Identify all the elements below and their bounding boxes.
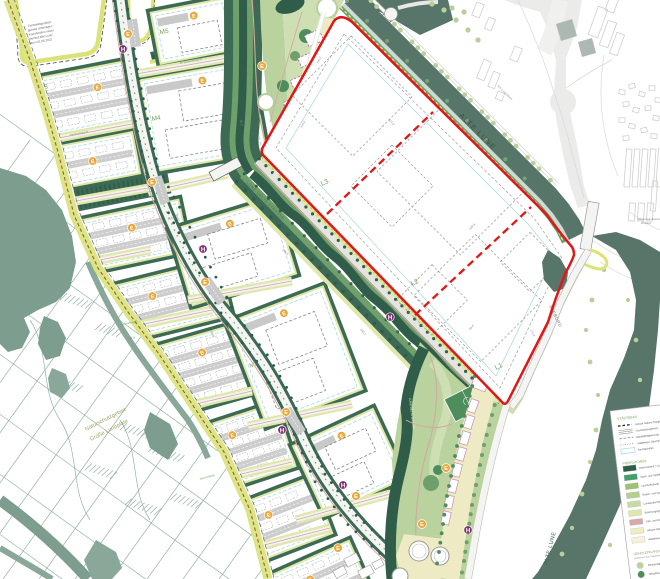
svg-text:E: E [354,494,358,500]
svg-text:Wulsdorf: Wulsdorf [641,221,651,225]
svg-text:E: E [260,64,264,70]
svg-text:E: E [203,280,207,286]
svg-text:E: E [150,180,154,186]
svg-text:H: H [466,528,470,534]
svg-text:H: H [280,428,284,434]
svg-text:E: E [336,546,340,552]
svg-text:H: H [201,247,205,253]
svg-text:E: E [126,32,130,38]
svg-text:E: E [420,522,424,528]
svg-text:E: E [444,466,448,472]
svg-text:E: E [284,410,288,416]
svg-text:H: H [341,483,345,489]
svg-text:H: H [388,315,392,321]
svg-text:H: H [121,47,125,53]
svg-text:Wasserstandsanzeiger: Wasserstandsanzeiger [638,217,660,221]
